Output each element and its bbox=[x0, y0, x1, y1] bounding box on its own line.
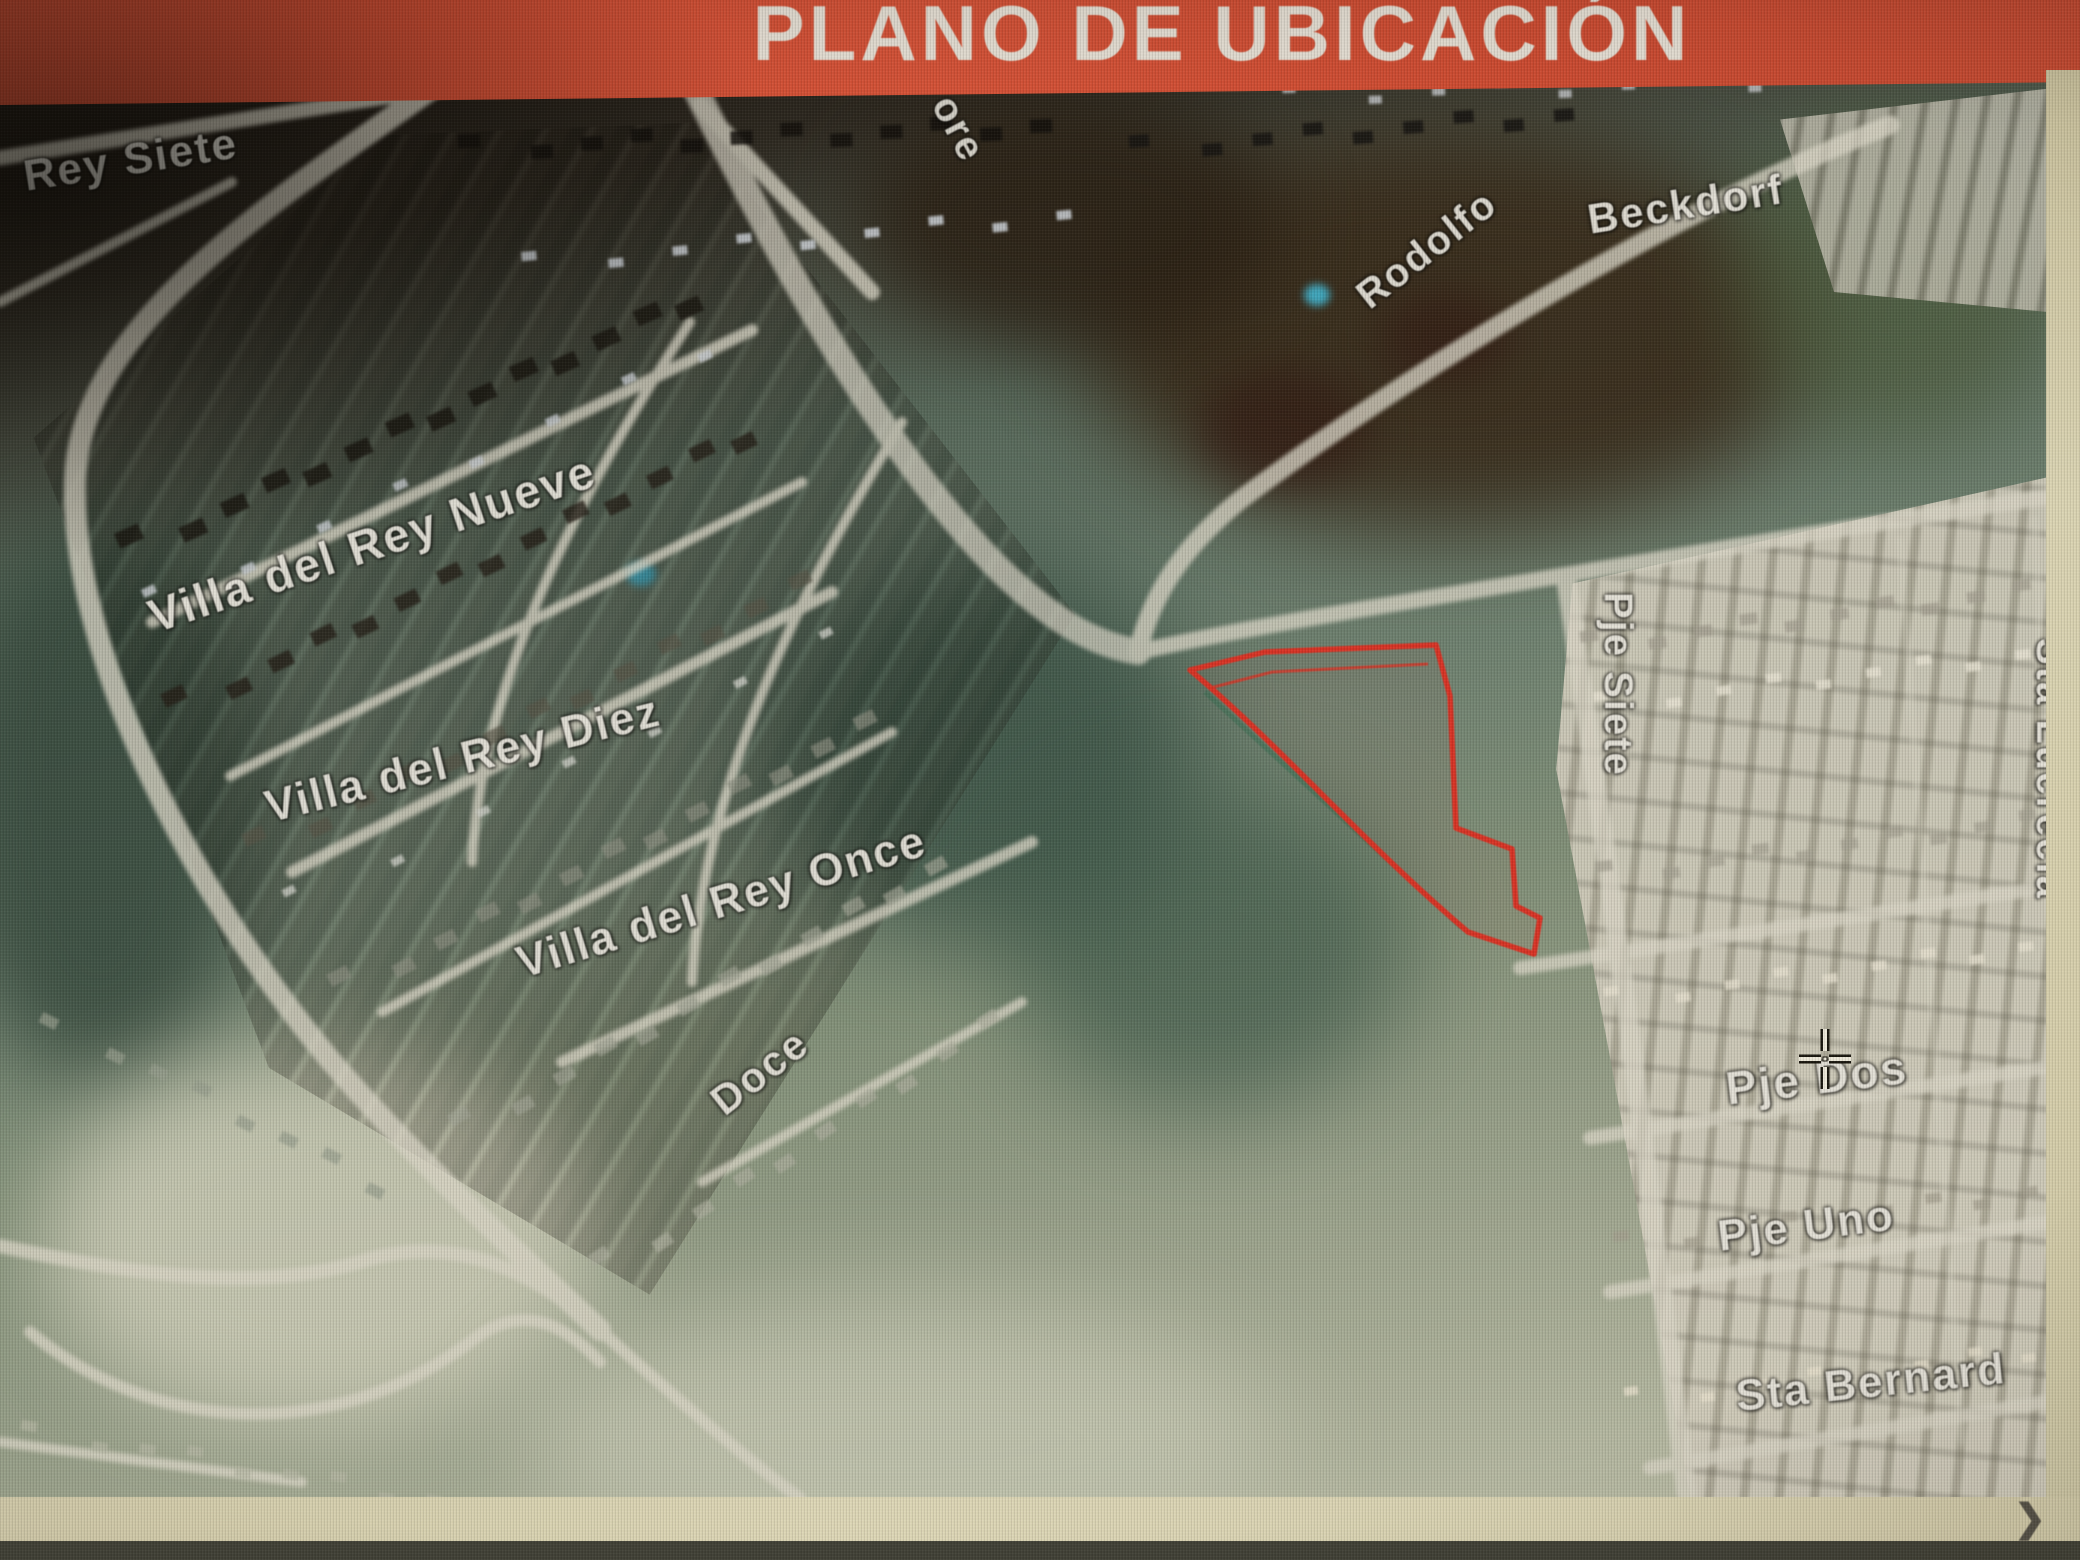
building-roof bbox=[730, 431, 758, 455]
building-roof bbox=[385, 412, 415, 437]
building-roof bbox=[509, 357, 539, 382]
building-roof bbox=[390, 854, 405, 867]
building-roof bbox=[1965, 661, 1981, 672]
building-roof bbox=[392, 478, 408, 492]
building-roof bbox=[531, 144, 554, 159]
building-roof bbox=[1724, 979, 1740, 990]
building-roof bbox=[1129, 134, 1150, 148]
building-roof bbox=[1056, 210, 1072, 221]
building-roof bbox=[1612, 1230, 1629, 1242]
building-roof bbox=[1693, 624, 1712, 637]
building-roof bbox=[587, 1245, 611, 1266]
building-roof bbox=[672, 245, 688, 256]
building-roof bbox=[830, 133, 853, 148]
building-roof bbox=[435, 561, 463, 585]
building-roof bbox=[1816, 679, 1832, 690]
building-roof bbox=[733, 676, 748, 689]
building-roof bbox=[1252, 132, 1273, 146]
building-roof bbox=[928, 215, 944, 226]
building-roof bbox=[1603, 985, 1619, 996]
building-roof bbox=[1554, 108, 1575, 122]
building-roof bbox=[1974, 821, 1992, 834]
building-roof bbox=[364, 1182, 385, 1200]
building-roof bbox=[1830, 607, 1849, 620]
bottom-scrollbar-strip[interactable] bbox=[0, 1497, 2080, 1541]
building-roof bbox=[1840, 838, 1858, 851]
building-roof bbox=[552, 1065, 577, 1087]
building-roof bbox=[219, 493, 249, 518]
building-roof bbox=[1684, 1236, 1701, 1248]
building-roof bbox=[744, 597, 770, 619]
building-roof bbox=[633, 301, 663, 326]
building-roof bbox=[1624, 1386, 1639, 1396]
building-roof bbox=[105, 1047, 126, 1065]
building-roof bbox=[38, 1012, 59, 1030]
building-roof bbox=[773, 1153, 797, 1174]
building-roof bbox=[1921, 602, 1940, 615]
building-roof bbox=[1885, 826, 1903, 839]
building-roof bbox=[261, 468, 291, 493]
building-roof bbox=[841, 895, 866, 917]
right-scrollbar-strip[interactable] bbox=[2046, 70, 2080, 1500]
building-roof bbox=[1403, 120, 1424, 134]
building-roof bbox=[267, 650, 295, 674]
building-roof bbox=[148, 1063, 169, 1081]
building-roof bbox=[1969, 954, 1985, 965]
building-roof bbox=[520, 527, 548, 551]
building-roof bbox=[1773, 966, 1789, 977]
building-roof bbox=[278, 1131, 299, 1149]
chevron-right-icon[interactable]: ❯ bbox=[2014, 1496, 2046, 1541]
building-roof bbox=[1920, 947, 1936, 958]
building-roof bbox=[1662, 867, 1680, 880]
building-roof bbox=[613, 661, 639, 683]
building-roof bbox=[1925, 1192, 1942, 1204]
building-roof bbox=[674, 295, 704, 320]
building-roof bbox=[1751, 843, 1769, 856]
building-roof bbox=[1700, 1392, 1715, 1402]
building-roof bbox=[1666, 697, 1682, 708]
building-roof bbox=[178, 518, 208, 543]
building-roof bbox=[1875, 595, 1894, 608]
building-roof bbox=[475, 901, 501, 923]
building-roof bbox=[630, 128, 653, 143]
building-roof bbox=[1716, 685, 1732, 696]
building-roof bbox=[1559, 90, 1572, 99]
building-roof bbox=[684, 801, 710, 823]
building-roof bbox=[20, 1420, 37, 1432]
building-roof bbox=[302, 462, 332, 487]
building-roof bbox=[559, 865, 585, 887]
building-roof bbox=[1202, 143, 1223, 157]
building-roof bbox=[511, 1095, 536, 1117]
building-roof bbox=[477, 554, 505, 578]
building-roof bbox=[326, 965, 352, 987]
building-roof bbox=[114, 523, 144, 548]
building-roof bbox=[1648, 636, 1667, 649]
building-roof bbox=[736, 233, 752, 244]
building-roof bbox=[646, 466, 674, 490]
building-roof bbox=[1966, 590, 1985, 603]
building-roof bbox=[1796, 850, 1814, 863]
building-roof bbox=[581, 136, 604, 151]
building-roof bbox=[225, 676, 253, 700]
building-roof bbox=[601, 837, 627, 859]
building-roof bbox=[1707, 855, 1725, 868]
building-roof bbox=[426, 406, 456, 431]
building-roof bbox=[780, 122, 803, 137]
building-roof bbox=[1503, 118, 1524, 132]
building-roof bbox=[852, 709, 878, 731]
building-roof bbox=[517, 892, 543, 914]
building-roof bbox=[814, 1120, 838, 1141]
building-roof bbox=[732, 1166, 756, 1187]
building-roof bbox=[467, 382, 497, 407]
building-roof bbox=[1369, 95, 1382, 104]
building-roof bbox=[1453, 110, 1474, 124]
building-roof bbox=[393, 588, 421, 612]
building-roof bbox=[680, 139, 703, 154]
building-roof bbox=[730, 130, 753, 145]
building-roof bbox=[651, 1232, 675, 1253]
building-roof bbox=[191, 1079, 212, 1097]
building-roof bbox=[241, 825, 267, 847]
building-roof bbox=[1766, 672, 1782, 683]
building-roof bbox=[2018, 941, 2034, 952]
building-roof bbox=[2021, 1353, 2036, 1363]
crosshair-cursor-icon bbox=[1796, 1026, 1854, 1092]
building-roof bbox=[800, 240, 816, 251]
building-roof bbox=[1784, 619, 1803, 632]
building-roof bbox=[1595, 860, 1613, 873]
page-title: PLANO DE UBICACIÓN bbox=[753, 0, 1692, 79]
building-roof bbox=[139, 1443, 156, 1455]
building-roof bbox=[447, 1105, 472, 1127]
building-roof bbox=[1822, 973, 1838, 984]
building-roof bbox=[330, 1471, 347, 1483]
building-roof bbox=[321, 1147, 342, 1165]
building-roof bbox=[433, 929, 459, 951]
building-roof bbox=[160, 684, 188, 708]
building-roof bbox=[235, 1115, 256, 1133]
building-roof bbox=[2012, 578, 2031, 591]
building-roof bbox=[810, 737, 836, 759]
screen-photo: Rey Siete ore Rodolfo Beckdorf Villa del… bbox=[0, 0, 2080, 1560]
building-roof bbox=[1302, 122, 1323, 136]
building-roof bbox=[187, 1445, 204, 1457]
building-roof bbox=[550, 351, 580, 376]
street-label-pje-siete: Pje Siete bbox=[1595, 592, 1640, 777]
building-roof bbox=[1973, 1198, 1990, 1210]
building-roof bbox=[309, 623, 337, 647]
building-roof bbox=[281, 884, 296, 897]
building-roof bbox=[1739, 612, 1758, 625]
building-roof bbox=[1353, 130, 1374, 144]
building-roof bbox=[1915, 654, 1931, 665]
building-roof bbox=[351, 615, 379, 639]
building-roof bbox=[688, 439, 716, 463]
building-roof bbox=[992, 222, 1008, 233]
screen-bottom-edge bbox=[0, 1541, 2080, 1560]
building-roof bbox=[1871, 960, 1887, 971]
building-roof bbox=[521, 251, 537, 262]
building-roof bbox=[2021, 1186, 2038, 1198]
building-roof bbox=[1675, 992, 1691, 1003]
building-roof bbox=[643, 828, 669, 850]
building-roof bbox=[818, 626, 833, 639]
building-roof bbox=[458, 134, 481, 149]
building-roof bbox=[591, 326, 621, 351]
building-roof bbox=[656, 633, 682, 655]
building-roof bbox=[692, 1199, 716, 1220]
building-roof bbox=[1030, 119, 1053, 134]
building-roof bbox=[343, 437, 373, 462]
building-roof bbox=[1865, 667, 1881, 678]
building-roof bbox=[604, 492, 632, 516]
building-roof bbox=[880, 125, 903, 140]
building-roof bbox=[864, 227, 880, 238]
building-roof bbox=[608, 257, 624, 268]
building-roof bbox=[391, 956, 417, 978]
building-roof bbox=[1929, 833, 1947, 846]
highlighted-parcel-outline bbox=[1190, 645, 1540, 954]
